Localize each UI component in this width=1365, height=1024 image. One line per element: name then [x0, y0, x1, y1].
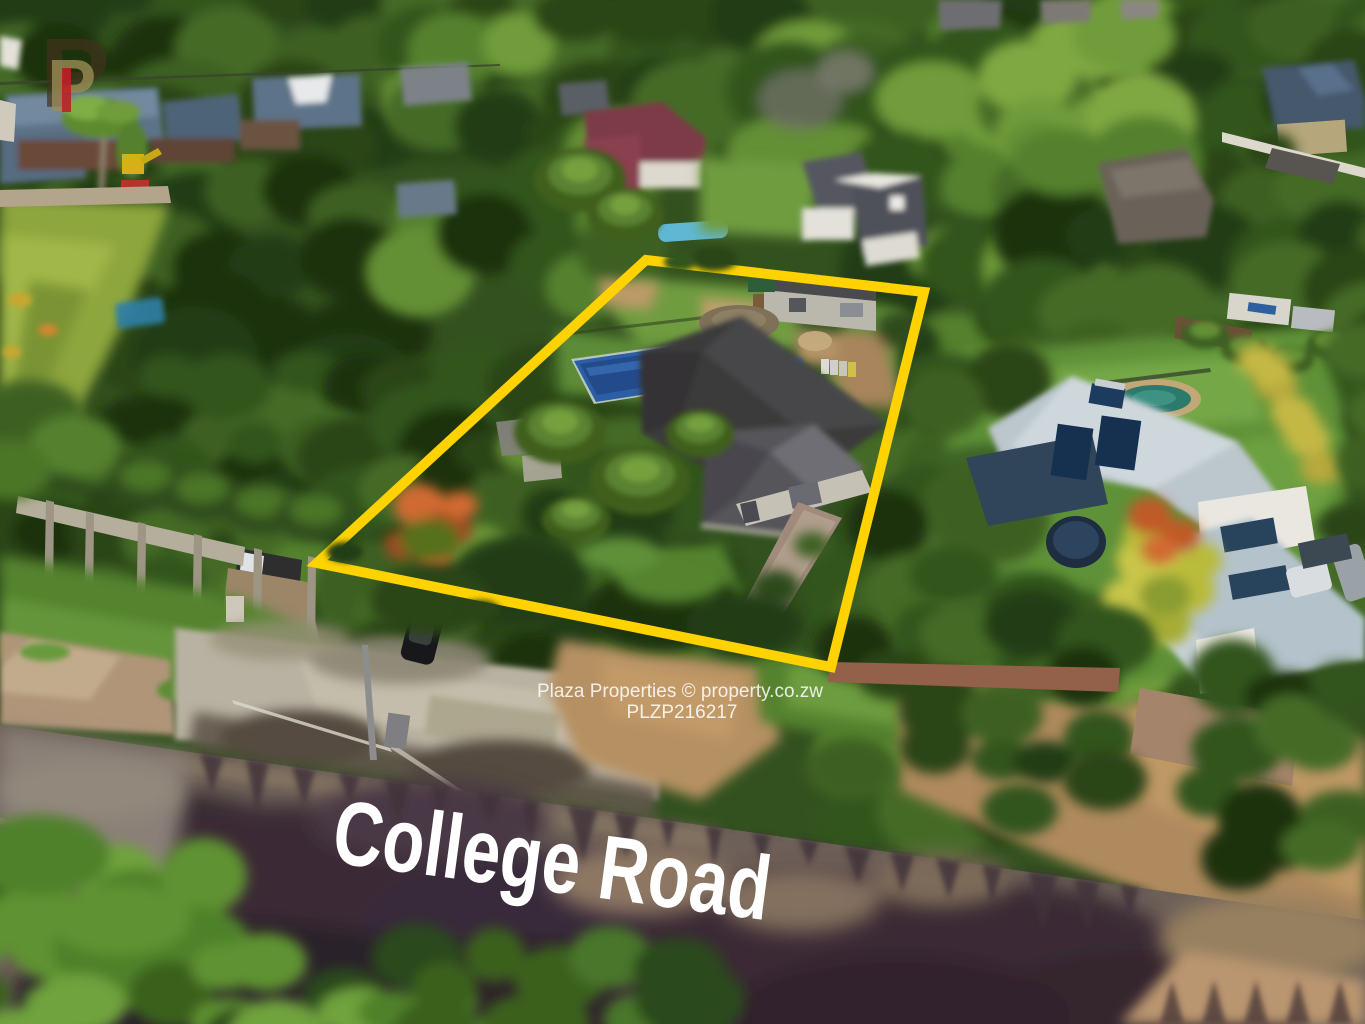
svg-text:P: P — [47, 44, 96, 127]
svg-text:Plaza Properties © property.co: Plaza Properties © property.co.zw — [537, 681, 823, 702]
svg-text:PLZP216217: PLZP216217 — [627, 702, 738, 723]
